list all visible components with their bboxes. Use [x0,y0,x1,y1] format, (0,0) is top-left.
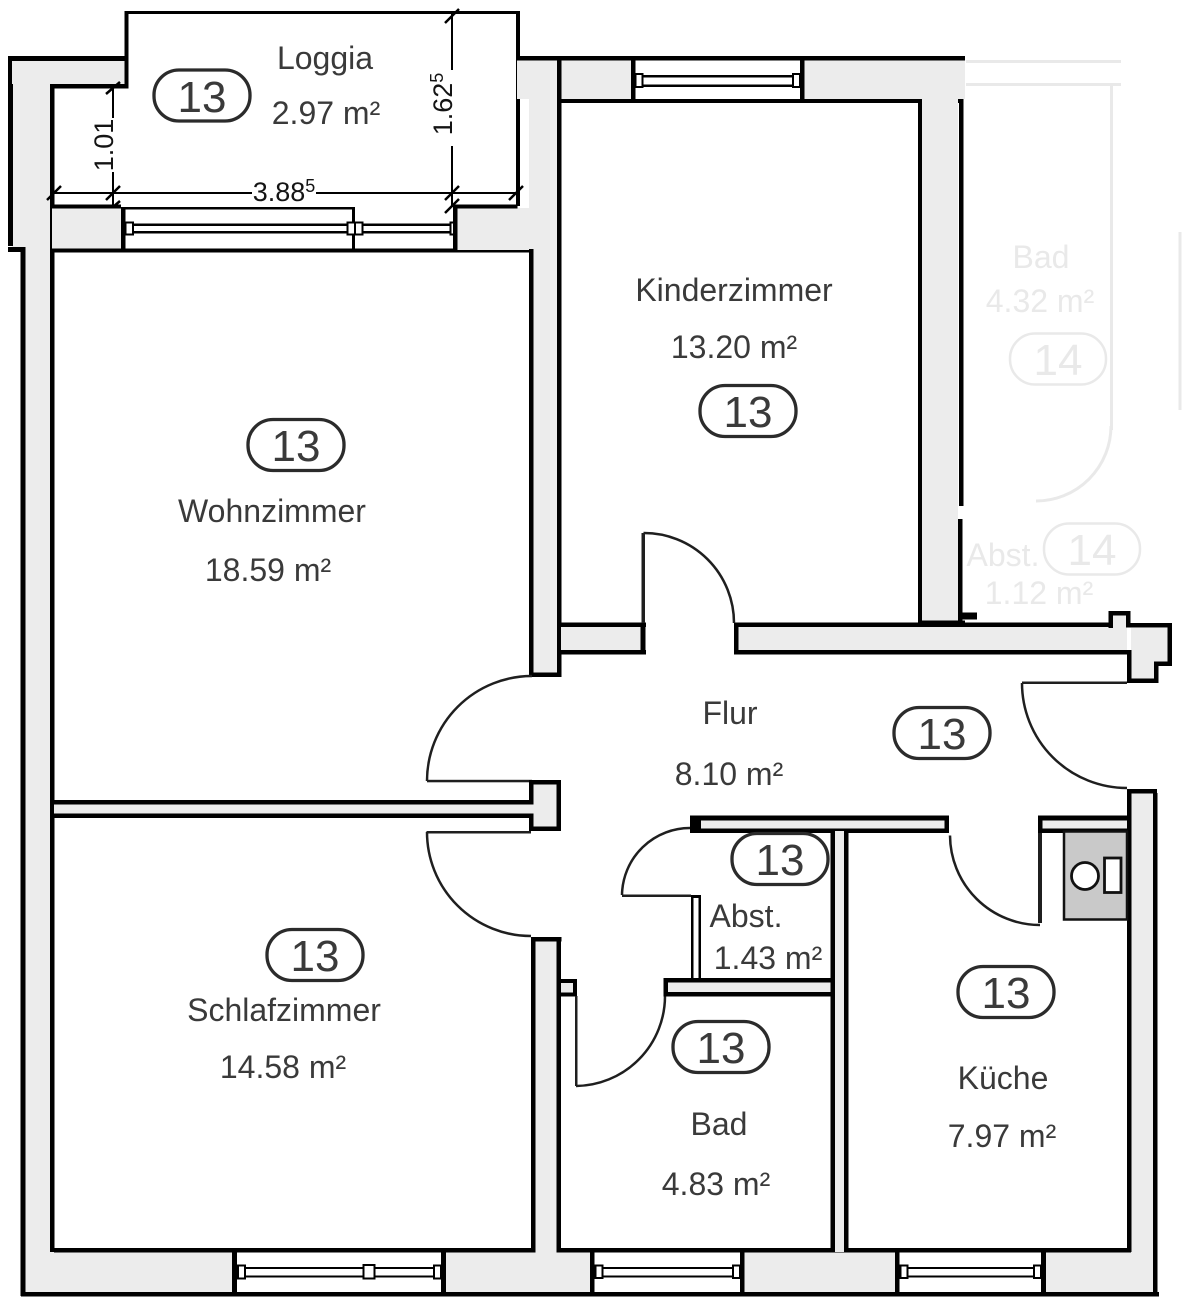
svg-text:13: 13 [272,422,321,471]
svg-text:Abst.: Abst. [967,537,1040,573]
svg-text:14.58 m²: 14.58 m² [220,1049,347,1085]
svg-text:14: 14 [1068,526,1117,575]
svg-text:13: 13 [724,388,773,437]
svg-text:1.43 m²: 1.43 m² [714,940,823,976]
svg-text:13: 13 [697,1024,746,1073]
svg-text:Küche: Küche [958,1060,1049,1096]
svg-text:4.32 m²: 4.32 m² [986,283,1095,319]
svg-text:13: 13 [178,73,227,122]
svg-text:Schlafzimmer: Schlafzimmer [187,992,381,1028]
svg-text:1.12 m²: 1.12 m² [985,575,1094,611]
svg-text:14: 14 [1034,336,1083,385]
svg-text:1.01: 1.01 [89,119,119,172]
svg-text:13: 13 [982,969,1031,1018]
svg-text:2.97 m²: 2.97 m² [272,95,381,131]
svg-text:Wohnzimmer: Wohnzimmer [178,493,366,529]
svg-text:4.83 m²: 4.83 m² [662,1166,771,1202]
svg-text:Loggia: Loggia [277,40,373,76]
svg-text:13: 13 [291,932,340,981]
svg-text:Abst.: Abst. [710,898,783,934]
svg-text:Bad: Bad [1013,239,1070,275]
svg-text:Kinderzimmer: Kinderzimmer [635,272,833,308]
svg-text:7.97 m²: 7.97 m² [948,1118,1057,1154]
svg-text:13: 13 [918,710,967,759]
svg-text:13.20 m²: 13.20 m² [671,329,798,365]
svg-text:Flur: Flur [702,695,757,731]
svg-text:8.10 m²: 8.10 m² [675,756,784,792]
svg-text:18.59 m²: 18.59 m² [205,552,332,588]
svg-text:Bad: Bad [691,1106,748,1142]
svg-text:13: 13 [756,836,805,885]
